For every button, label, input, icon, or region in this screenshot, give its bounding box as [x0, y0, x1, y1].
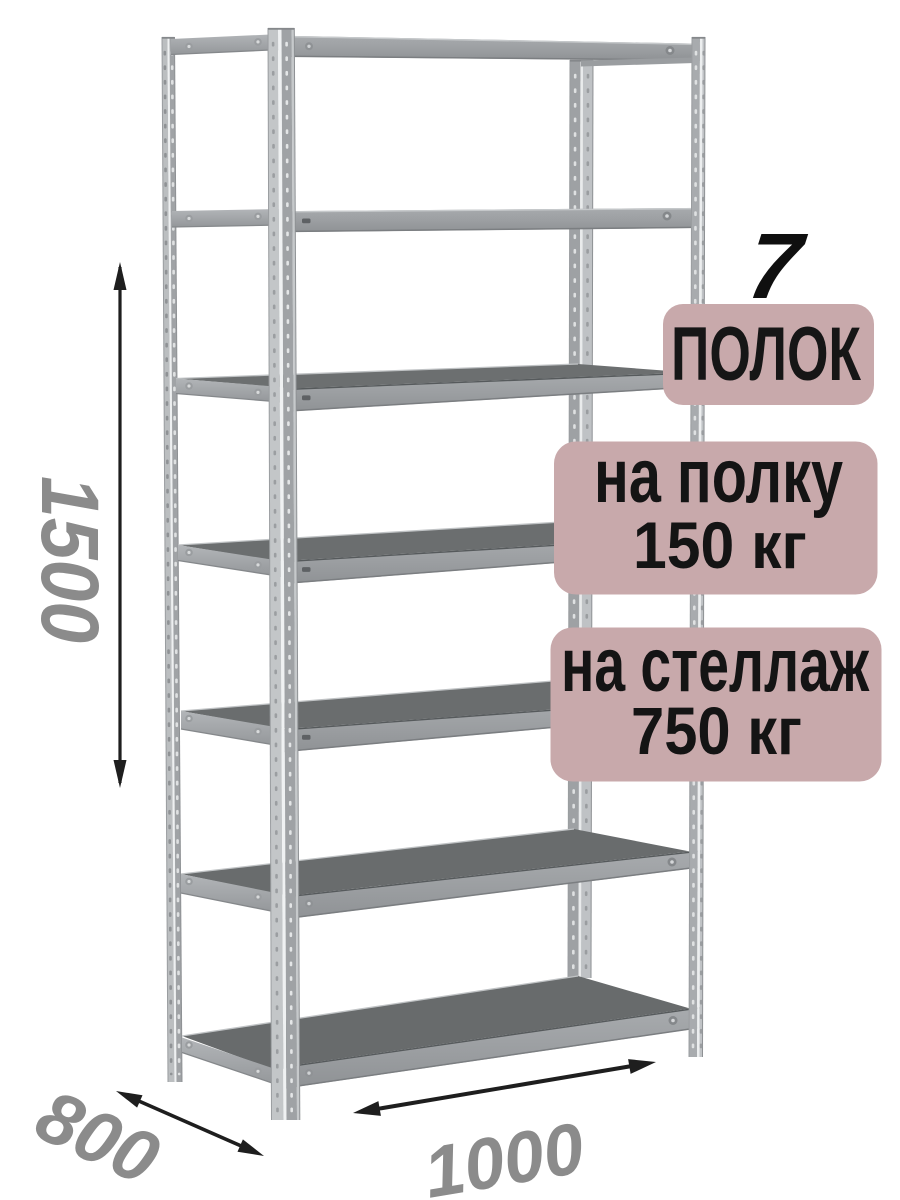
svg-text:ПОЛОК: ПОЛОК — [671, 312, 861, 397]
svg-text:150 кг: 150 кг — [633, 510, 807, 583]
svg-text:на полку: на полку — [594, 434, 843, 519]
svg-text:750 кг: 750 кг — [631, 694, 802, 769]
svg-text:1500: 1500 — [24, 476, 115, 643]
